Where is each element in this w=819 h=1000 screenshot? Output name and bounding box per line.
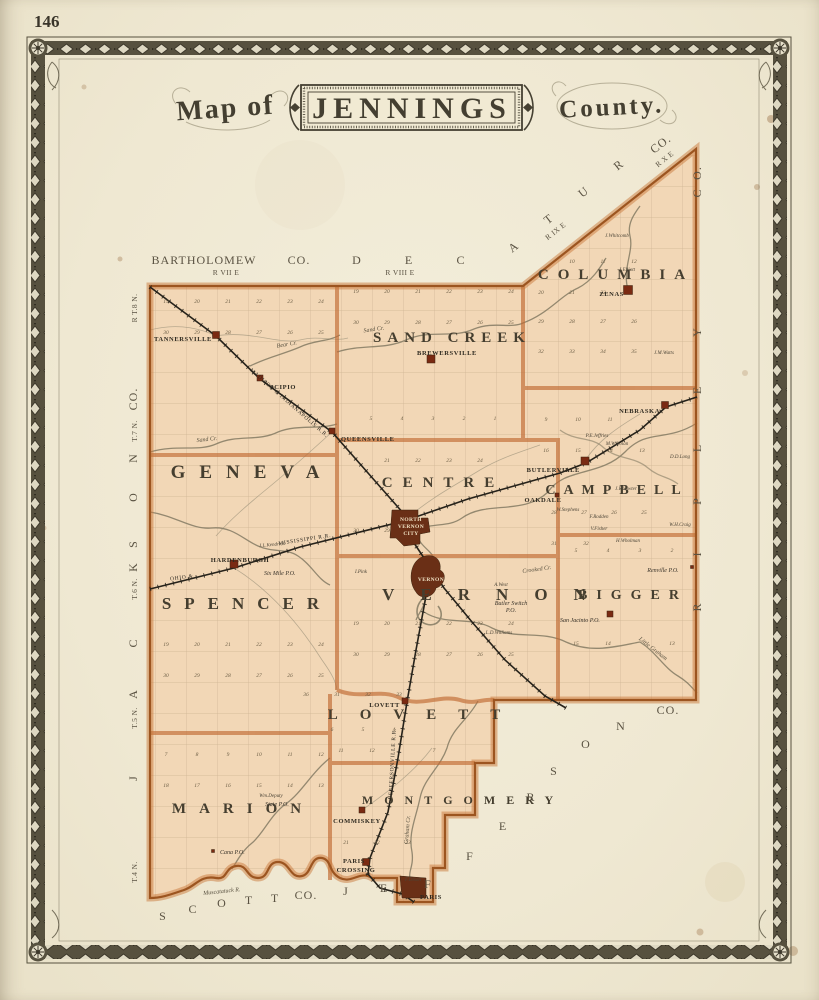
- section-number: 19: [163, 642, 169, 648]
- section-number: 18: [163, 783, 169, 789]
- section-number: 30: [352, 320, 359, 326]
- county-letter-scott: O: [217, 896, 227, 910]
- section-number: 26: [477, 652, 483, 658]
- town-marker-tannersville: [213, 332, 220, 339]
- section-number: 29: [384, 320, 390, 326]
- section-number: 3: [638, 548, 642, 554]
- township-label-spencer: SPENCER: [162, 594, 332, 613]
- section-number: 10: [256, 752, 262, 758]
- section-number: 29: [384, 528, 390, 534]
- section-number: 21: [415, 621, 421, 627]
- section-number: 21: [343, 840, 349, 846]
- section-number: 27: [256, 330, 262, 336]
- title-suffix: County.: [558, 91, 664, 123]
- section-number: 14: [605, 640, 611, 647]
- title-prefix: Map of: [175, 90, 275, 128]
- county-letter-ripley: O.: [690, 166, 704, 180]
- section-number: 22: [256, 642, 262, 648]
- county-letter-ripley: I: [690, 552, 704, 557]
- section-number: 26: [611, 510, 617, 516]
- county-letter-decatur: C: [456, 253, 465, 267]
- section-number: 26: [287, 673, 293, 679]
- farm-name: W.H.Craig: [669, 523, 691, 528]
- section-number: 7: [165, 752, 168, 758]
- section-number: 13: [318, 783, 324, 789]
- farm-name: F.Rodden: [589, 515, 609, 520]
- section-number: 33: [395, 692, 402, 698]
- town-label-paris-crossing-1: PARIS: [343, 858, 365, 865]
- section-number: 16: [543, 448, 549, 454]
- section-number: 4: [401, 415, 404, 422]
- town-label-hardenburgh: HARDENBURGH: [211, 557, 270, 564]
- range-label: T.6 N.: [130, 578, 139, 599]
- section-number: 9: [545, 417, 548, 423]
- section-number: 11: [600, 259, 605, 265]
- town-marker-lovett: [402, 698, 408, 704]
- section-number: 10: [575, 417, 581, 423]
- county-letter-ripley: L: [690, 444, 704, 452]
- section-number: 20: [384, 621, 390, 627]
- county-letter-jackson: J: [126, 775, 140, 781]
- county-letter-jefferson: F: [424, 877, 432, 891]
- section-number: 23: [287, 299, 293, 305]
- section-number: 29: [194, 673, 200, 679]
- po-label-cana: Cana P.O.: [220, 850, 245, 856]
- section-number: 26: [631, 319, 637, 325]
- section-number: 19: [353, 621, 359, 627]
- farm-name: L.D.Williams: [485, 631, 512, 636]
- section-number: 8: [196, 752, 199, 758]
- section-number: 11: [287, 752, 292, 758]
- section-number: 22: [446, 289, 452, 295]
- section-number: 34: [599, 348, 606, 355]
- section-number: 5: [370, 416, 373, 422]
- po-label-renville: Renville P.O.: [646, 568, 678, 574]
- county-letter-scott: T: [245, 893, 253, 907]
- section-number: 25: [318, 673, 324, 679]
- town-label-paris: PARIS: [420, 894, 442, 901]
- farm-name: Wm.Deputy: [259, 794, 283, 799]
- county-letter-ripley: Y: [690, 327, 704, 337]
- town-label-oakdale: OAKDALE: [524, 497, 561, 504]
- section-number: 1: [494, 416, 497, 422]
- range-label: R VIII E: [385, 268, 414, 277]
- county-label-bartholomew: BARTHOLOMEW: [152, 253, 257, 267]
- farm-name: J.R.Vawter: [615, 487, 637, 492]
- town-label-commiskey: COMMISKEY: [333, 818, 381, 825]
- city-label-north-vernon-1: NORTH: [400, 517, 422, 523]
- section-number: 24: [318, 641, 324, 648]
- atlas-page: 146 Map of JENNINGS County.: [0, 0, 819, 1000]
- po-label-butler-switch-2: P.O.: [505, 608, 516, 614]
- county-letter-jackson: S: [126, 540, 140, 548]
- section-number: 28: [225, 330, 231, 336]
- town-label-queensville: QUEENSVILLE: [341, 436, 395, 443]
- section-number: 20: [194, 642, 200, 648]
- county-letter-decatur: D: [352, 253, 362, 267]
- section-number: 11: [607, 417, 612, 423]
- range-label: T.5 N.: [130, 707, 139, 728]
- section-number: 21: [225, 299, 231, 305]
- po-label-butler-switch-1: Butler Switch: [495, 601, 528, 607]
- section-number: 16: [225, 783, 231, 789]
- farm-name: F.Dixon: [404, 878, 421, 883]
- township-label-centre: CENTRE: [382, 475, 505, 491]
- title-block: Map of JENNINGS County.: [173, 82, 677, 130]
- section-number: 17: [194, 783, 200, 789]
- section-number: 10: [569, 259, 575, 265]
- county-letter-jackson: A: [126, 689, 140, 699]
- section-number: 12: [318, 752, 324, 758]
- county-letter-jefferson: S: [550, 764, 558, 778]
- section-number: 35: [630, 349, 637, 355]
- farm-name: D.D.Long: [669, 455, 691, 460]
- section-number: 28: [569, 319, 575, 325]
- section-number: 11: [338, 748, 343, 754]
- section-number: 3: [431, 416, 435, 422]
- corner-ornament: [29, 39, 48, 58]
- section-number: 32: [537, 349, 544, 355]
- section-number: 14: [607, 447, 613, 454]
- section-number: 21: [225, 642, 231, 648]
- frame-band-left: [31, 41, 45, 959]
- section-number: 25: [641, 510, 647, 516]
- township-label-geneva: GENEVA: [171, 462, 334, 483]
- section-number: 24: [508, 620, 514, 627]
- section-number: 4: [607, 547, 610, 554]
- county-letter-jefferson: N: [616, 719, 626, 733]
- town-label-brewersville: BREWERSVILLE: [417, 350, 477, 357]
- farm-name: I.Pink: [354, 570, 368, 575]
- county-letter-jefferson: O: [581, 737, 591, 751]
- po-label-state: State P.O.: [265, 802, 289, 808]
- section-number: 19: [353, 289, 359, 295]
- section-number: 26: [287, 330, 293, 336]
- town-label-vernon: VERNON: [418, 577, 444, 583]
- town-label-lovett: LOVETT: [369, 702, 400, 709]
- section-number: 29: [538, 319, 544, 325]
- section-number: 23: [477, 289, 483, 295]
- section-number: 30: [352, 528, 359, 534]
- county-letter-jackson: C: [126, 638, 140, 647]
- section-number: 31: [550, 541, 557, 547]
- section-number: 6: [331, 727, 334, 733]
- section-number: 27: [600, 319, 606, 325]
- county-letter-jackson: O: [126, 492, 140, 502]
- county-letter-ripley: P: [690, 497, 704, 505]
- county-letter-jackson: N: [126, 453, 140, 463]
- farm-name: J.Elliott: [619, 268, 636, 273]
- city-label-north-vernon-2: VERNON: [398, 524, 424, 530]
- section-number: 30: [162, 673, 169, 679]
- town-marker-san-jacinto: [607, 611, 613, 617]
- township-label-marion: MARION: [172, 801, 314, 817]
- town-marker-renville: [691, 566, 694, 569]
- section-number: 28: [415, 320, 421, 326]
- section-number: 13: [669, 641, 675, 647]
- range-label: T.7 N.: [130, 420, 139, 441]
- township-label-bigger: BIGGER: [578, 588, 688, 603]
- range-label: R T.8 N.: [130, 294, 139, 323]
- town-marker-cana: [212, 850, 215, 853]
- county-letter-jefferson: E: [380, 881, 388, 895]
- section-number: 27: [256, 673, 262, 679]
- section-number: 21: [569, 290, 575, 296]
- section-number: 24: [318, 298, 324, 305]
- section-number: 28: [415, 652, 421, 658]
- town-label-paris-crossing-2: CROSSING: [337, 867, 376, 874]
- section-number: 2: [671, 548, 674, 554]
- county-letter-decatur: T: [541, 211, 556, 227]
- county-letter-jefferson: E: [499, 819, 507, 833]
- section-number: 7: [433, 748, 436, 754]
- section-number: 20: [194, 299, 200, 305]
- section-number: 23: [477, 621, 483, 627]
- farm-name: A.West: [493, 583, 508, 588]
- section-number: 5: [575, 548, 578, 554]
- section-number: 32: [582, 541, 589, 547]
- map-canvas: 146 Map of JENNINGS County.: [0, 0, 819, 1000]
- town-marker-zenas: [624, 286, 633, 295]
- county-letter-scott: S: [159, 909, 167, 923]
- section-number: 14: [287, 782, 293, 789]
- frame-band-bottom: [31, 945, 787, 959]
- section-number: 32: [364, 692, 371, 698]
- town-label-nebraska: NEBRASKA: [619, 408, 660, 415]
- section-number: 12: [369, 748, 375, 754]
- section-number: 19: [163, 299, 169, 305]
- county-letter-jefferson: J: [343, 884, 349, 898]
- county-letter-decatur: E: [405, 253, 413, 267]
- county-label-bartholomew-co: CO.: [288, 253, 311, 267]
- section-number: 22: [415, 458, 421, 464]
- range-label: R VII E: [213, 268, 239, 277]
- township-label-sand-creek: SAND CREEK: [373, 330, 531, 346]
- town-label-zenas: ZENAS: [599, 291, 624, 298]
- section-number: 9: [227, 752, 230, 758]
- county-letter-scott: T: [271, 891, 279, 905]
- town-marker-nebraska: [662, 402, 669, 409]
- farm-name: H.Wholman: [615, 539, 641, 544]
- section-number: 15: [573, 641, 579, 647]
- section-number: 29: [384, 652, 390, 658]
- farm-name: J.M.Watts: [654, 351, 674, 356]
- county-label-scott-co: CO.: [295, 888, 318, 902]
- section-number: 24: [508, 288, 514, 295]
- section-number: 25: [508, 652, 514, 658]
- frame-band-right: [773, 41, 787, 959]
- section-number: 31: [333, 692, 340, 698]
- section-number: 20: [384, 289, 390, 295]
- town-marker-commiskey: [359, 807, 365, 813]
- section-number: 30: [352, 652, 359, 658]
- county-label-jefferson-co: CO.: [657, 703, 680, 717]
- corner-ornament: [771, 39, 790, 58]
- section-number: 24: [477, 457, 483, 464]
- section-number: 25: [508, 320, 514, 326]
- farm-name: J.Whitcomb: [605, 234, 629, 239]
- county-letter-decatur: U: [575, 183, 591, 200]
- farm-name: V.Fisher: [591, 527, 608, 532]
- county-letter-jackson: K: [126, 562, 140, 572]
- farm-name: W.Stephens: [557, 508, 580, 513]
- town-marker-butlerville: [581, 457, 589, 465]
- farm-name: P.E.Jeffries: [585, 434, 609, 439]
- section-number: 21: [415, 289, 421, 295]
- county-letter-decatur: A: [505, 238, 521, 255]
- section-number: 33: [568, 349, 575, 355]
- county-letter-ripley: E: [690, 386, 704, 394]
- po-label-six-mile: Six Mile P.O.: [264, 571, 296, 577]
- town-marker-queensville: [329, 428, 335, 434]
- section-number: 12: [631, 259, 637, 265]
- section-number: 27: [446, 320, 452, 326]
- county-letter-decatur: R: [611, 157, 627, 174]
- section-number: 22: [256, 299, 262, 305]
- corner-ornament: [771, 943, 790, 962]
- frame-band-top: [31, 41, 787, 55]
- range-label: T.4 N.: [130, 861, 139, 882]
- section-number: 23: [287, 642, 293, 648]
- section-number: 21: [384, 458, 390, 464]
- county-label-jackson-co: CO.: [126, 388, 140, 411]
- section-number: 5: [362, 727, 365, 733]
- section-number: 22: [446, 621, 452, 627]
- section-number: 13: [639, 448, 645, 454]
- farm-name: M.W.Nolan: [605, 442, 629, 447]
- county-letter-jefferson: F: [466, 849, 474, 863]
- county-letter-ripley: C: [690, 188, 704, 197]
- corner-ornament: [29, 943, 48, 962]
- po-label-san-jacinto: San Jacinto P.O.: [560, 618, 600, 624]
- section-number: 2: [463, 416, 466, 422]
- section-number: 27: [581, 510, 587, 516]
- county-letter-scott: C: [188, 902, 197, 916]
- section-number: 20: [538, 290, 544, 296]
- section-number: 15: [256, 783, 262, 789]
- page-number: 146: [34, 12, 60, 31]
- section-number: 27: [446, 652, 452, 658]
- section-number: 22: [374, 840, 380, 846]
- township-label-lovett: LOVETT: [328, 707, 523, 723]
- section-number: 26: [477, 320, 483, 326]
- section-number: 25: [318, 330, 324, 336]
- section-number: 28: [225, 673, 231, 679]
- township-label-columbia: COLUMBIA: [538, 267, 694, 283]
- county-letter-jefferson: R: [526, 790, 535, 804]
- section-number: 15: [575, 448, 581, 454]
- town-label-tannersville: TANNERSVILLE: [154, 336, 212, 343]
- title-main: JENNINGS: [312, 92, 512, 125]
- city-label-north-vernon-3: CITY: [403, 531, 418, 537]
- section-number: 23: [446, 458, 452, 464]
- county-letter-ripley: R: [690, 602, 704, 611]
- town-label-butlerville: BUTLERVILLE: [527, 467, 580, 474]
- section-number: 36: [302, 692, 309, 698]
